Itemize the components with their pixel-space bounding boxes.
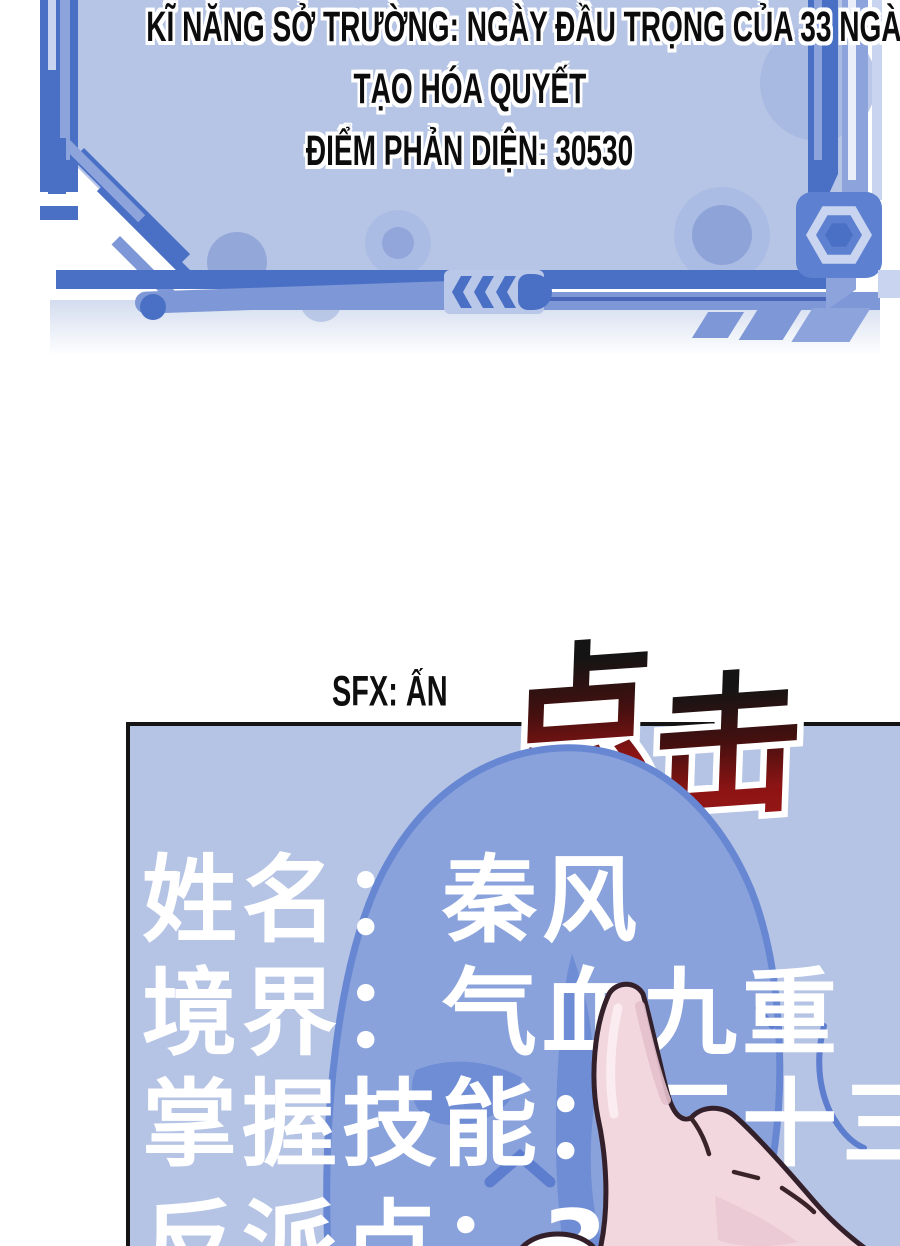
frame-left-highlight — [48, 0, 56, 70]
bubble-decoration — [692, 205, 752, 265]
comic-page: KĨ NĂNG SỞ TRƯỜNG: NGÀY ĐẦU TRỌNG CỦA 33… — [0, 0, 900, 1246]
sfx-caption: SFX: ẤN — [332, 668, 448, 717]
hexagon-ornament — [796, 192, 882, 278]
bubble-decoration — [382, 227, 414, 259]
thumb-nail — [516, 1234, 600, 1246]
pointing-hand — [130, 726, 900, 1246]
status-line-1: KĨ NĂNG SỞ TRƯỜNG: NGÀY ĐẦU TRỌNG CỦA 33… — [146, 2, 900, 51]
stats-panel: 姓名：秦风 境界：气血九重（ 掌握技能：三十三 反派点：30 — [126, 722, 900, 1246]
frame-edge-piece — [878, 270, 900, 298]
frame-bar-cap — [140, 294, 166, 320]
frame-stub — [48, 138, 66, 194]
status-panel: KĨ NĂNG SỞ TRƯỜNG: NGÀY ĐẦU TRỌNG CỦA 33… — [0, 0, 900, 360]
status-line-2: TẠO HÓA QUYẾT — [354, 64, 587, 113]
frame-stub — [40, 206, 78, 220]
status-line-3: ĐIỂM PHẢN DIỆN: 30530 — [306, 126, 633, 175]
